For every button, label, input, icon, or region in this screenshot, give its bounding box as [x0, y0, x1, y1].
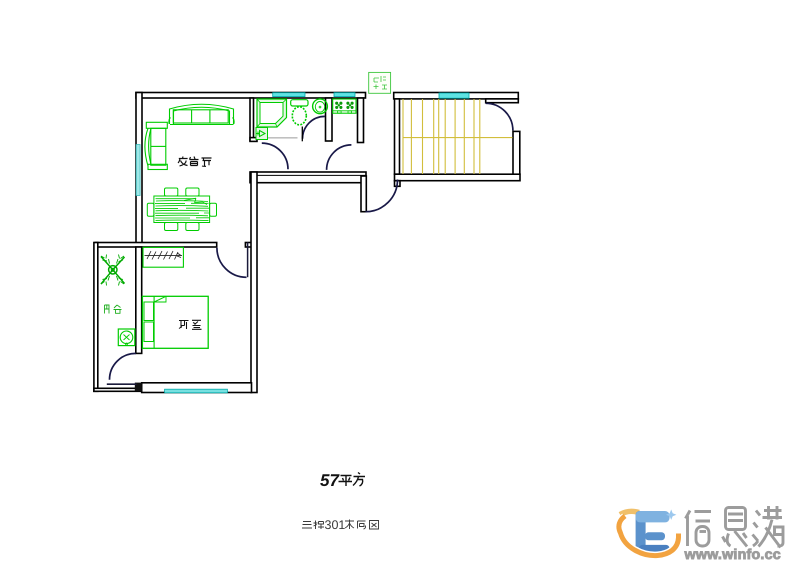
- svg-text:57: 57: [320, 471, 340, 490]
- svg-text:www.winfo.cc: www.winfo.cc: [684, 547, 781, 563]
- svg-text:301: 301: [325, 518, 346, 532]
